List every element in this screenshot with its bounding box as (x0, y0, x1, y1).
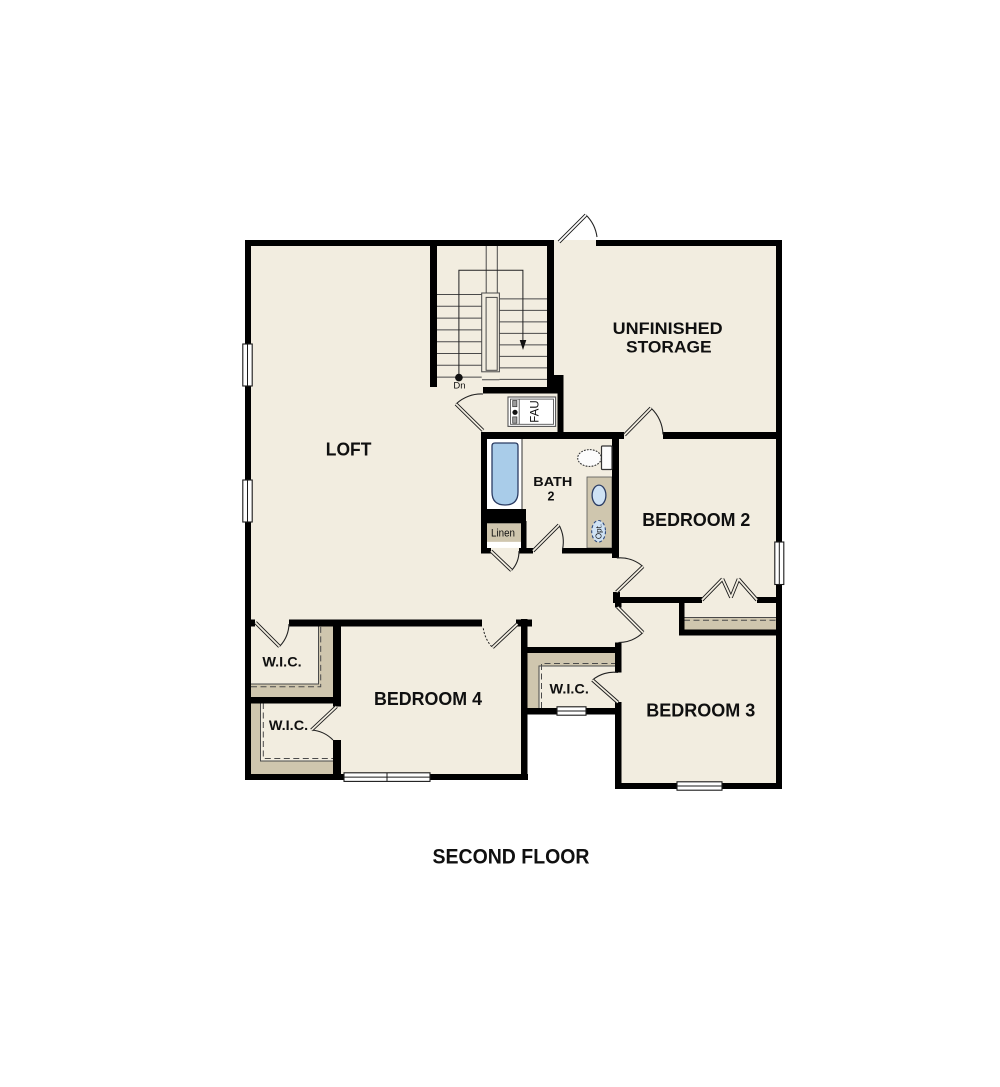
svg-text:BEDROOM 3: BEDROOM 3 (646, 701, 755, 721)
svg-text:LOFT: LOFT (326, 440, 372, 460)
svg-text:Opt.: Opt. (594, 524, 603, 539)
svg-text:STORAGE: STORAGE (626, 337, 712, 356)
svg-text:W.I.C.: W.I.C. (550, 681, 589, 697)
svg-text:Linen: Linen (491, 528, 515, 540)
svg-text:SECOND FLOOR: SECOND FLOOR (433, 844, 590, 868)
svg-text:2: 2 (548, 490, 555, 504)
svg-text:BEDROOM 2: BEDROOM 2 (642, 510, 750, 530)
svg-text:BEDROOM 4: BEDROOM 4 (374, 689, 482, 709)
svg-text:BATH: BATH (533, 475, 572, 489)
svg-text:W.I.C.: W.I.C. (262, 653, 301, 669)
svg-text:Dn: Dn (453, 380, 465, 391)
svg-text:FAU: FAU (530, 400, 542, 422)
svg-text:W.I.C.: W.I.C. (269, 717, 308, 733)
svg-text:UNFINISHED: UNFINISHED (613, 319, 723, 338)
